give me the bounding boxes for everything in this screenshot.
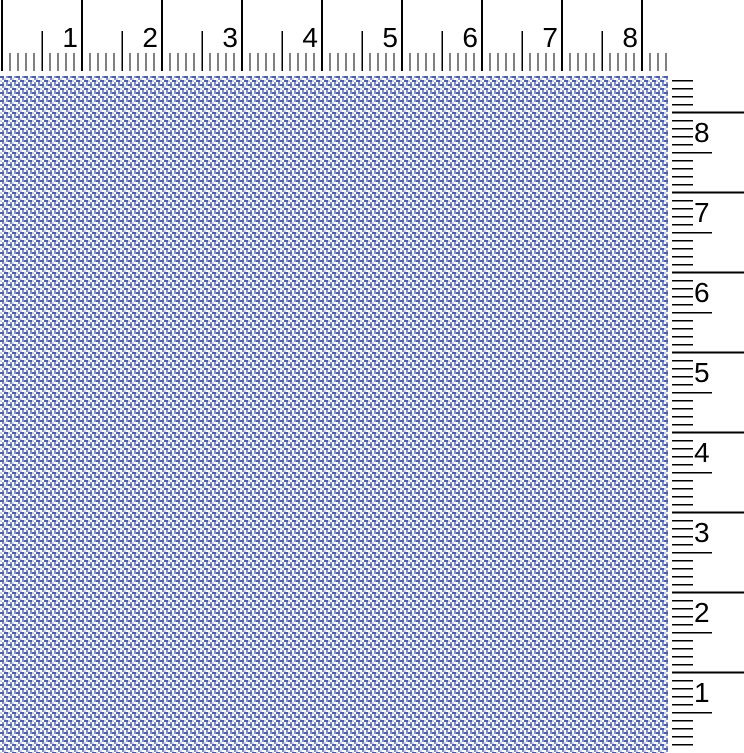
horizontal-ruler-unit-label: 7 [516,24,558,52]
vertical-ruler-unit-label: 4 [694,439,738,467]
horizontal-ruler-unit-label: 8 [596,24,638,52]
horizontal-ruler-unit-label: 6 [436,24,478,52]
vertical-ruler [668,76,744,753]
weave-pattern-fill [0,76,668,753]
horizontal-ruler-unit-label: 3 [196,24,238,52]
vertical-ruler-unit-label: 1 [694,679,738,707]
vertical-ruler-unit-label: 5 [694,359,738,387]
horizontal-ruler-unit-label: 1 [36,24,78,52]
vertical-ruler-unit-label: 7 [694,199,738,227]
horizontal-ruler-unit-label: 2 [116,24,158,52]
vertical-ruler-unit-label: 3 [694,519,738,547]
fabric-swatch[interactable] [0,76,668,753]
vertical-ruler-unit-label: 2 [694,599,738,627]
vertical-tick-marks [672,81,744,745]
vertical-ruler-unit-label: 6 [694,279,738,307]
horizontal-ruler-unit-label: 5 [356,24,398,52]
horizontal-tick-marks [2,0,666,71]
horizontal-ruler-unit-label: 4 [276,24,318,52]
fabric-design-view: 12345678 87654321 [0,0,744,753]
vertical-ruler-unit-label: 8 [694,119,738,147]
